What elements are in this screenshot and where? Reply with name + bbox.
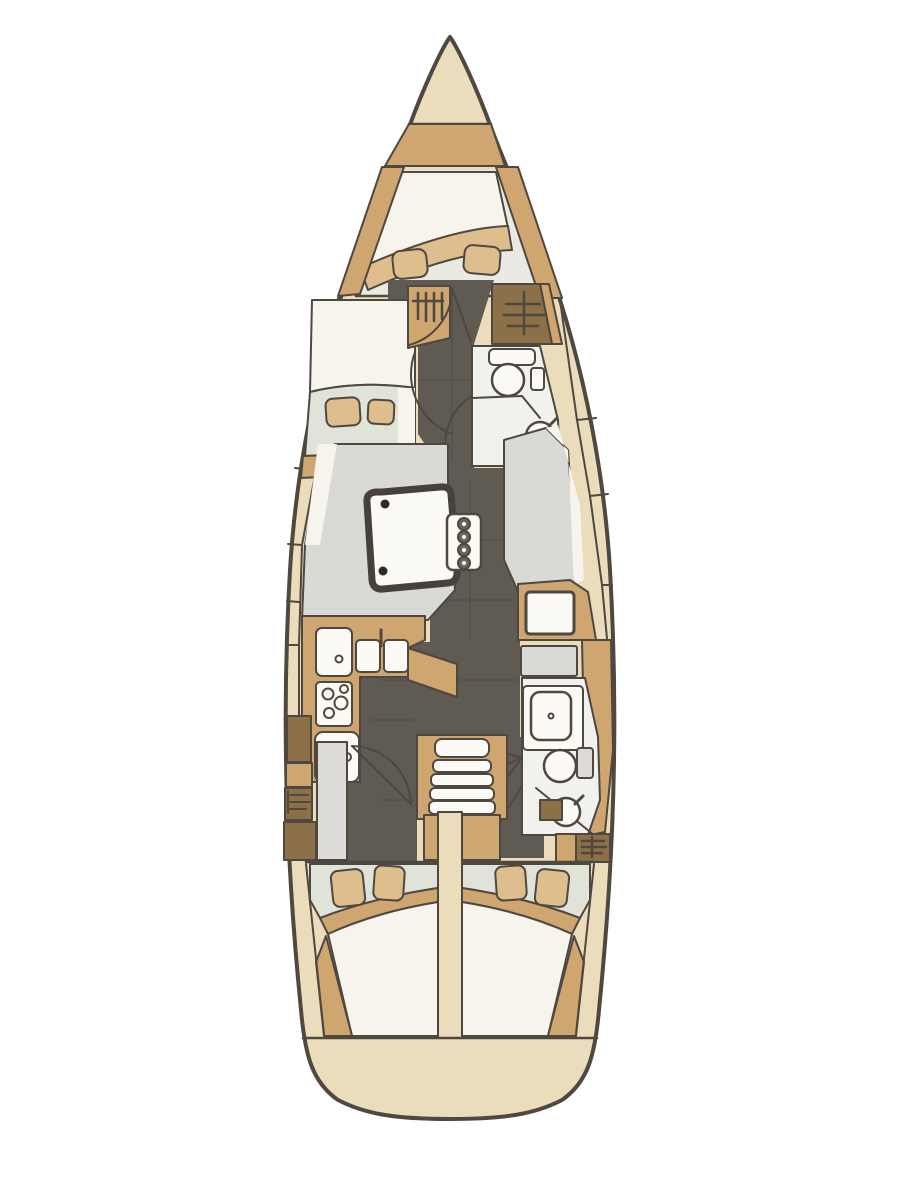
port-cabin-door bbox=[317, 742, 347, 860]
shower-icon bbox=[523, 686, 583, 750]
mast-post bbox=[447, 514, 481, 570]
pillow bbox=[330, 868, 366, 907]
yacht-floor-plan-page bbox=[0, 0, 900, 1200]
pillow bbox=[392, 248, 429, 279]
stove-icon bbox=[316, 682, 352, 726]
pillow bbox=[373, 865, 405, 901]
aft-cabin-starboard bbox=[462, 864, 594, 1036]
pillow bbox=[325, 397, 361, 427]
port-locker-block bbox=[284, 822, 316, 860]
toilet-icon bbox=[489, 349, 544, 396]
port-cabin-berth bbox=[310, 300, 415, 392]
stairs-icon bbox=[429, 739, 495, 814]
port-band-block bbox=[286, 763, 312, 787]
starboard-settee bbox=[504, 428, 576, 596]
toilet-icon bbox=[544, 748, 593, 782]
aft-head-lockers bbox=[556, 834, 610, 862]
aft-cabin-port bbox=[306, 864, 438, 1036]
aft-cabin-divider bbox=[438, 812, 462, 1038]
yacht-floor-plan bbox=[0, 0, 900, 1200]
forward-cabin bbox=[338, 167, 562, 298]
hanging-locker-aft-port bbox=[285, 788, 312, 820]
bow-section bbox=[385, 124, 505, 166]
galley-sink-icon bbox=[316, 628, 352, 676]
table-corner-dot bbox=[381, 500, 390, 509]
pillow bbox=[463, 244, 501, 275]
port-locker-block bbox=[287, 716, 311, 762]
hanger-icon bbox=[288, 791, 310, 813]
chart-table bbox=[526, 592, 574, 634]
port-cabin-berth-strip bbox=[398, 388, 415, 452]
bow-wood-band bbox=[385, 124, 505, 166]
starboard-bulkhead-block bbox=[540, 800, 562, 820]
hanger-icon bbox=[582, 837, 606, 857]
nav-seat bbox=[521, 646, 577, 676]
table-corner-dot bbox=[379, 567, 388, 576]
pillow bbox=[367, 399, 394, 424]
